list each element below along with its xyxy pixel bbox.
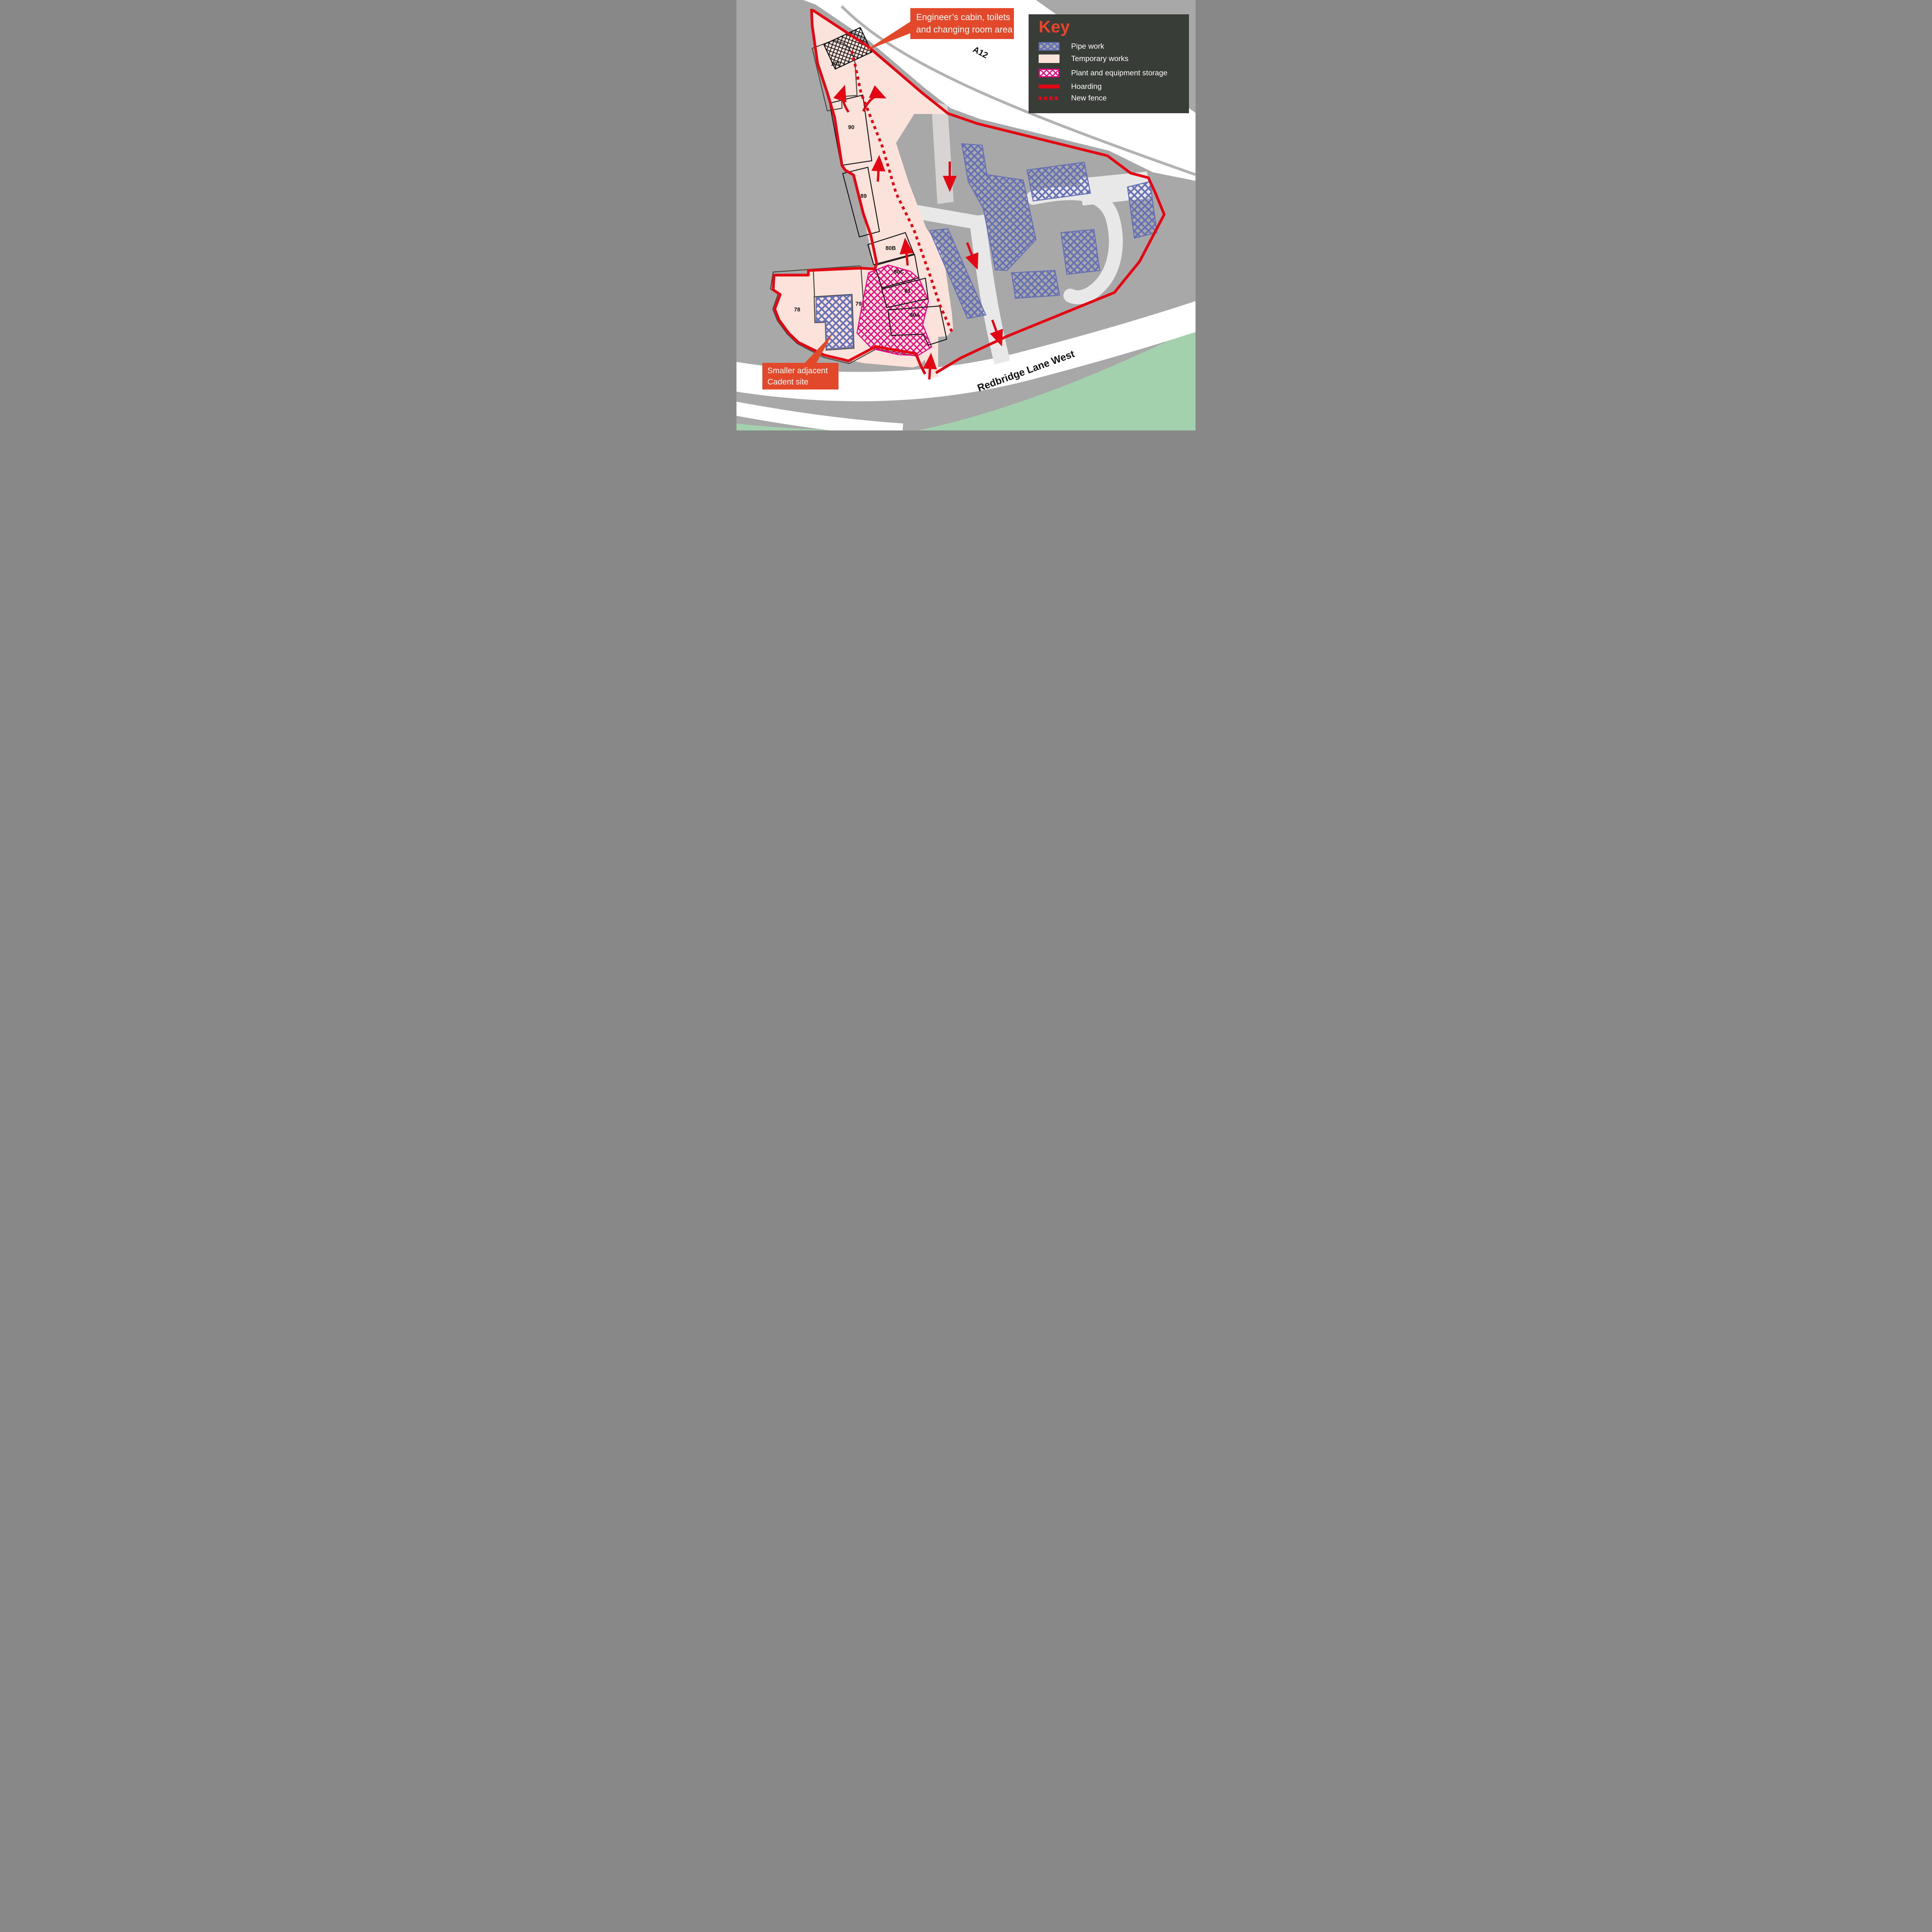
key-panel: Key Pipe work Temporary works Plant and … — [1029, 14, 1189, 113]
key-title: Key — [1039, 17, 1070, 37]
temporary-works-swatch-icon — [1039, 54, 1060, 63]
hoarding-swatch-icon — [1039, 85, 1060, 88]
new-fence-swatch-icon — [1039, 97, 1060, 100]
pipe-work-east — [1061, 230, 1100, 274]
engineer-callout-line2: and changing room area — [916, 23, 1014, 36]
key-item-new-fence: New fence — [1039, 94, 1107, 103]
label-80b: 80B — [886, 245, 896, 252]
cadent-callout-line1: Smaller adjacent — [767, 365, 838, 376]
label-89: 89 — [861, 193, 867, 199]
key-item-hoarding: Hoarding — [1039, 82, 1102, 91]
key-item-label: Pipe work — [1071, 42, 1104, 51]
key-item-plant-storage: Plant and equipment storage — [1039, 68, 1167, 78]
key-item-temporary-works: Temporary works — [1039, 54, 1128, 63]
pipe-work-swatch-icon — [1039, 42, 1060, 51]
engineer-callout: Engineer’s cabin, toilets and changing r… — [910, 8, 1014, 39]
label-90: 90 — [848, 124, 854, 131]
label-80c: 80C — [894, 269, 904, 275]
label-79: 79 — [855, 301, 862, 307]
cadent-callout-line2: Cadent site — [767, 376, 838, 388]
key-item-label: Hoarding — [1071, 82, 1102, 91]
key-item-label: Temporary works — [1071, 54, 1128, 63]
arrow-up-site-entrance — [929, 356, 931, 379]
key-item-label: Plant and equipment storage — [1071, 69, 1167, 78]
key-item-label: New fence — [1071, 94, 1107, 103]
label-81: 81 — [905, 288, 911, 294]
site-plan-map: 101 90 89 80B 80C 81 80A 79 78 A12 Redbr… — [736, 0, 1196, 430]
label-80a: 80A — [910, 312, 920, 318]
arrow-up-corridor — [878, 158, 879, 182]
plant-storage-swatch-icon — [1039, 69, 1060, 77]
label-78: 78 — [794, 307, 800, 313]
key-item-pipe-work: Pipe work — [1039, 42, 1104, 51]
pipe-work-south-central — [1012, 270, 1060, 298]
engineer-callout-line1: Engineer’s cabin, toilets — [916, 11, 1014, 23]
cadent-callout: Smaller adjacent Cadent site — [762, 363, 838, 389]
label-101: 101 — [831, 61, 840, 67]
